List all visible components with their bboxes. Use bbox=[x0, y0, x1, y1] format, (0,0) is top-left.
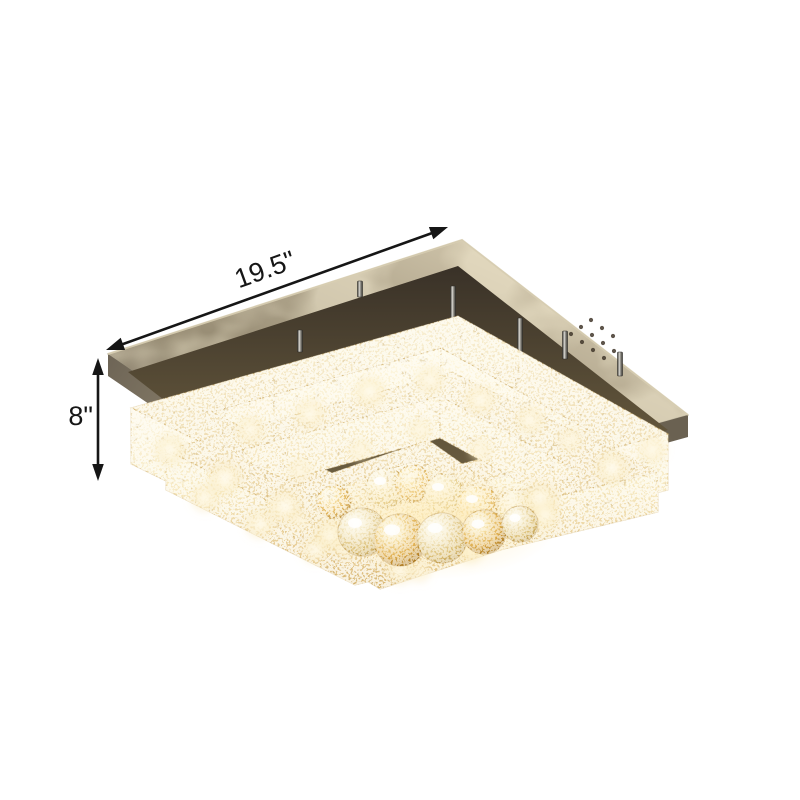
height-double-arrow-icon bbox=[92, 358, 104, 481]
height-label: 8" bbox=[68, 401, 93, 431]
width-label: 19.5" bbox=[231, 245, 300, 294]
ceiling-light-illustration: 19.5" 8" bbox=[0, 0, 800, 800]
product-photo-ceiling-light: 19.5" 8" bbox=[0, 0, 800, 800]
height-dimension: 8" bbox=[68, 358, 103, 481]
